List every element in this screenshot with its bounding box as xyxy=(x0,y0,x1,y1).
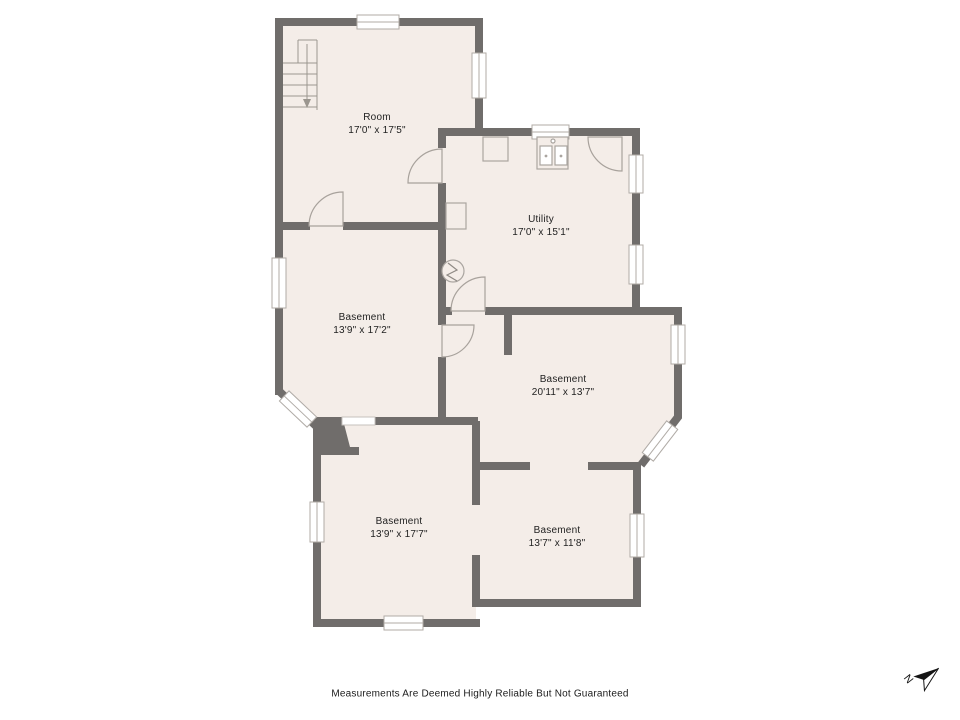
compass: N xyxy=(901,657,944,698)
room-dimensions: 13'7" x 11'8" xyxy=(529,537,586,550)
room-name: Basement xyxy=(534,525,581,536)
room-dimensions: 13'9" x 17'2" xyxy=(333,324,390,337)
north-label: N xyxy=(901,673,915,687)
window-utility-right-lower xyxy=(629,245,643,284)
room-name: Basement xyxy=(376,516,423,527)
window-basement-br-right xyxy=(630,514,644,557)
window-room-right xyxy=(472,53,486,98)
floor-plan-page: N Room 17'0" x 17'5" Utility 17'0" x 15'… xyxy=(0,0,960,720)
room-label-basement-mr: Basement 20'11" x 13'7" xyxy=(532,373,594,399)
room-dimensions: 20'11" x 13'7" xyxy=(532,386,594,399)
sump-pump xyxy=(442,260,464,282)
window-basement-bl-left xyxy=(310,502,324,542)
appliance xyxy=(483,137,508,161)
room-dimensions: 17'0" x 17'5" xyxy=(348,124,405,137)
room-name: Utility xyxy=(528,214,554,225)
window-basement-bl-bottom xyxy=(384,616,423,630)
room-dimensions: 17'0" x 15'1" xyxy=(512,226,569,239)
sink xyxy=(537,137,568,169)
storage-unit xyxy=(446,203,466,229)
room-label-basement-br: Basement 13'7" x 11'8" xyxy=(529,524,586,550)
floor-plan-drawing: N xyxy=(0,0,960,720)
window-basement-ml-left xyxy=(272,258,286,308)
room-label-room: Room 17'0" x 17'5" xyxy=(348,111,405,137)
room-label-basement-ml: Basement 13'9" x 17'2" xyxy=(333,311,390,337)
room-label-utility: Utility 17'0" x 15'1" xyxy=(512,213,569,239)
room-name: Room xyxy=(363,112,390,123)
room-name: Basement xyxy=(540,374,587,385)
measurement-disclaimer: Measurements Are Deemed Highly Reliable … xyxy=(331,689,628,700)
room-label-basement-bl: Basement 13'9" x 17'7" xyxy=(370,515,427,541)
window-utility-right-upper xyxy=(629,155,643,193)
room-dimensions: 13'9" x 17'7" xyxy=(370,528,427,541)
window-room-top xyxy=(357,15,399,29)
room-name: Basement xyxy=(339,312,386,323)
window-basement-mr-right xyxy=(671,325,685,364)
opening-basement-ml-bl xyxy=(342,417,375,425)
